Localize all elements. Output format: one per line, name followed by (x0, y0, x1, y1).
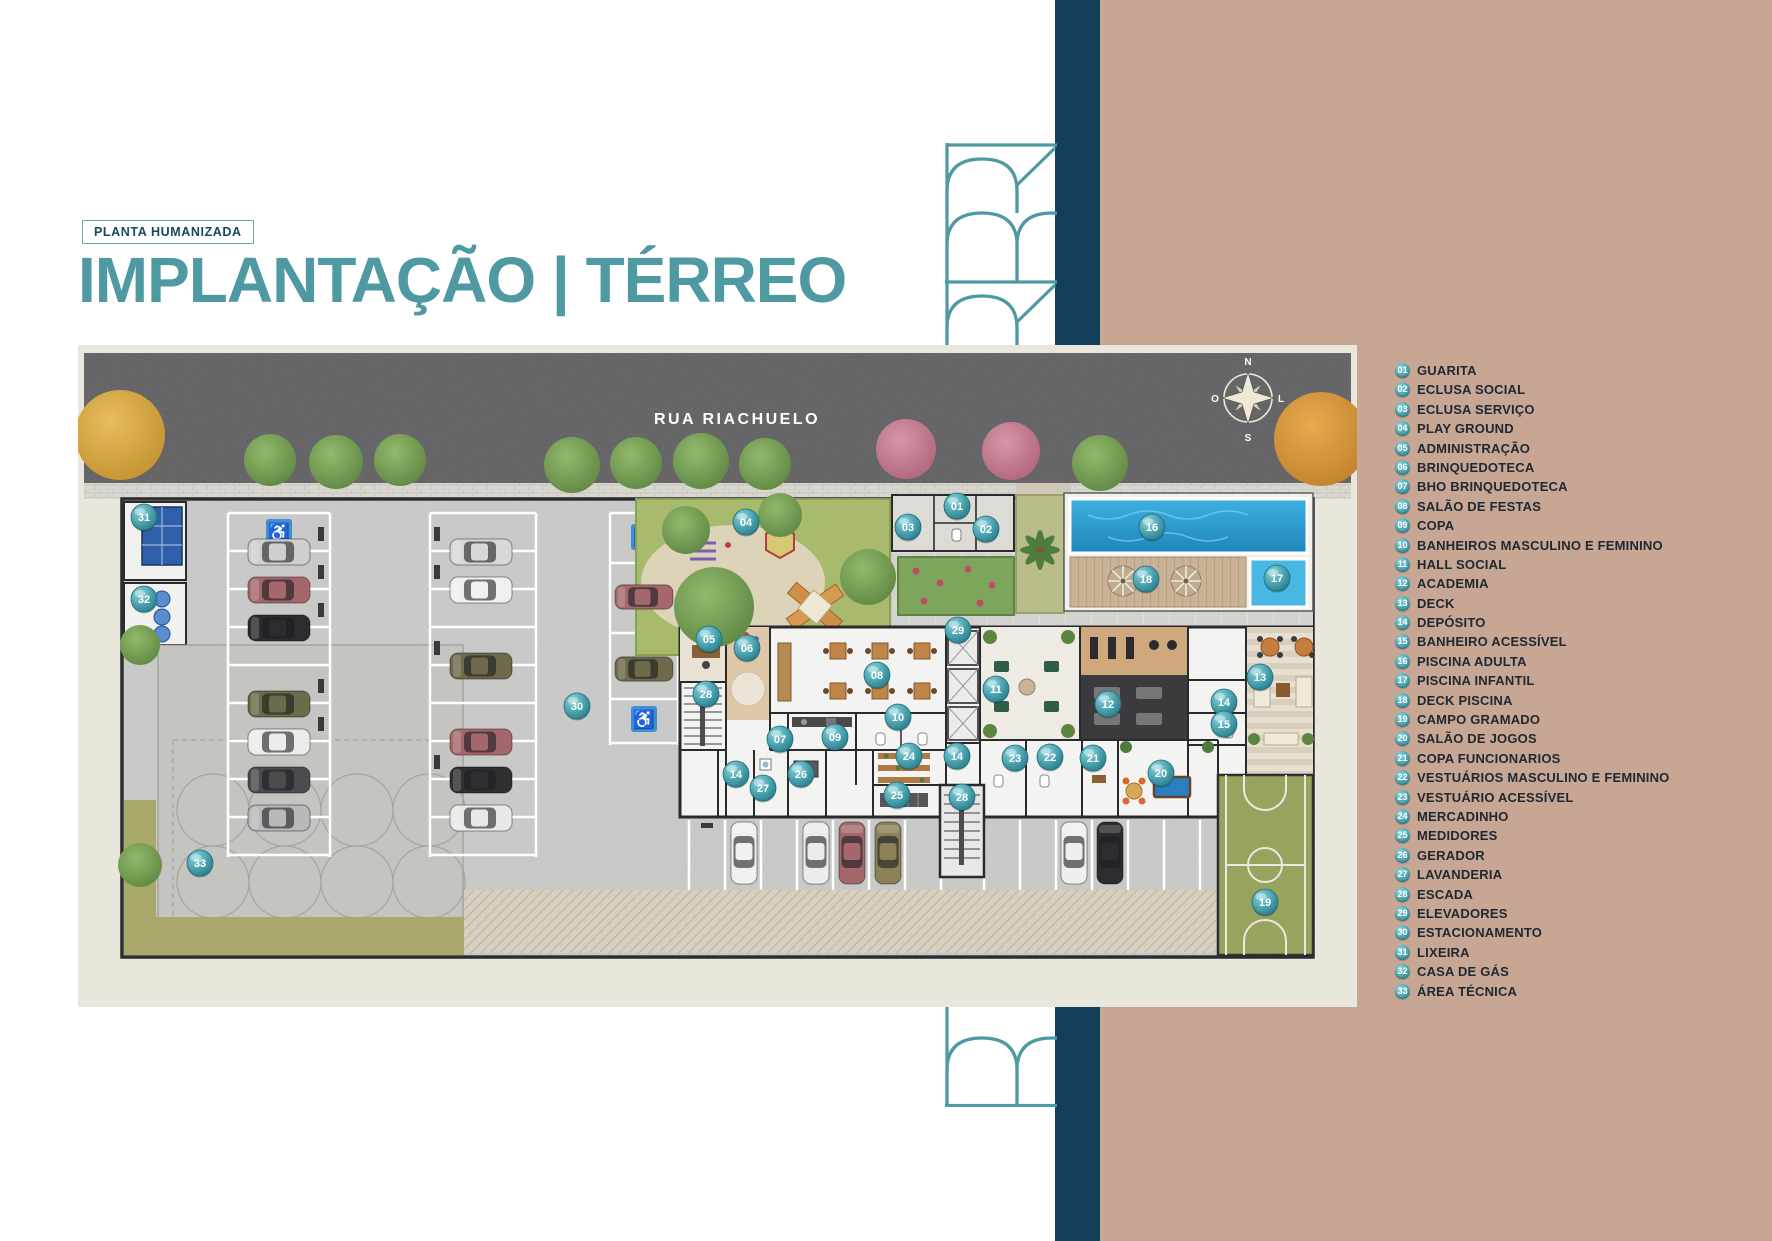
plan-marker: 31 (131, 504, 157, 532)
plan-marker: 14 (723, 761, 749, 789)
legend-item: 24MERCADINHO (1395, 809, 1670, 824)
legend-item-number: 19 (1395, 712, 1410, 727)
plan-marker: 25 (884, 782, 910, 810)
plan-marker: 18 (1133, 566, 1159, 594)
legend-item: 21COPA FUNCIONARIOS (1395, 751, 1670, 766)
legend-item-label: PISCINA ADULTA (1417, 654, 1527, 669)
legend-item-number: 12 (1395, 576, 1410, 591)
svg-text:17: 17 (1271, 573, 1283, 585)
legend-item-label: SALÃO DE FESTAS (1417, 499, 1541, 514)
svg-text:16: 16 (1146, 522, 1158, 534)
legend-item-number: 21 (1395, 751, 1410, 766)
legend-item-label: BANHEIRO ACESSÍVEL (1417, 634, 1567, 649)
plan-marker: 12 (1095, 691, 1121, 719)
svg-text:07: 07 (774, 734, 786, 746)
svg-text:O: O (1211, 394, 1219, 405)
plan-marker: 19 (1252, 889, 1278, 917)
legend-item-label: HALL SOCIAL (1417, 557, 1506, 572)
legend-item: 27LAVANDERIA (1395, 867, 1670, 882)
legend-item-number: 30 (1395, 925, 1410, 940)
svg-text:09: 09 (829, 732, 841, 744)
legend-item: 05ADMINISTRAÇÃO (1395, 441, 1670, 456)
svg-text:28: 28 (956, 792, 968, 804)
legend-item: 13DECK (1395, 596, 1670, 611)
svg-text:30: 30 (571, 701, 583, 713)
svg-text:22: 22 (1044, 752, 1056, 764)
legend-item-number: 31 (1395, 945, 1410, 960)
legend-item-number: 22 (1395, 770, 1410, 785)
legend-item-label: ELEVADORES (1417, 906, 1508, 921)
legend-item-label: PISCINA INFANTIL (1417, 673, 1535, 688)
pool-area (1064, 493, 1313, 611)
plan-marker: 30 (564, 693, 590, 721)
legend-item-number: 03 (1395, 402, 1410, 417)
svg-text:14: 14 (730, 769, 743, 781)
svg-text:31: 31 (138, 512, 150, 524)
legend-item-number: 05 (1395, 441, 1410, 456)
legend-item-label: CAMPO GRAMADO (1417, 712, 1540, 727)
plan-marker: 08 (864, 662, 890, 690)
decorative-arch-pattern-bottom (945, 1006, 1057, 1107)
svg-text:N: N (1244, 357, 1251, 368)
svg-text:02: 02 (980, 524, 992, 536)
svg-text:23: 23 (1009, 753, 1021, 765)
plan-marker: 04 (733, 509, 759, 537)
legend-item-label: ADMINISTRAÇÃO (1417, 441, 1530, 456)
floor-plan: ♿ RUA RIACHUELO N S L O (78, 345, 1357, 1007)
legend-item: 09COPA (1395, 518, 1670, 533)
legend-item-number: 15 (1395, 634, 1410, 649)
svg-text:08: 08 (871, 670, 883, 682)
svg-text:13: 13 (1254, 672, 1266, 684)
legend-item-label: LAVANDERIA (1417, 867, 1502, 882)
plan-marker: 28 (949, 784, 975, 812)
legend-item: 22VESTUÁRIOS MASCULINO E FEMININO (1395, 770, 1670, 785)
legend-item-number: 14 (1395, 615, 1410, 630)
legend-item-label: GUARITA (1417, 363, 1477, 378)
legend-item: 06BRINQUEDOTECA (1395, 460, 1670, 475)
legend-item-label: COPA (1417, 518, 1454, 533)
legend-item-number: 17 (1395, 673, 1410, 688)
legend-item: 28ESCADA (1395, 887, 1670, 902)
plan-marker: 24 (896, 743, 922, 771)
legend-item-label: SALÃO DE JOGOS (1417, 731, 1537, 746)
svg-text:33: 33 (194, 858, 206, 870)
svg-text:21: 21 (1087, 753, 1099, 765)
legend-item: 07BHO BRINQUEDOTECA (1395, 479, 1670, 494)
legend-item: 25MEDIDORES (1395, 828, 1670, 843)
driveway (464, 890, 1218, 953)
legend-item-label: VESTUÁRIOS MASCULINO E FEMININO (1417, 770, 1670, 785)
plan-marker: 14 (944, 743, 970, 771)
svg-text:18: 18 (1140, 574, 1152, 586)
legend-item: 01GUARITA (1395, 363, 1670, 378)
plan-marker: 26 (788, 761, 814, 789)
legend-item: 23VESTUÁRIO ACESSÍVEL (1395, 790, 1670, 805)
legend-item: 18DECK PISCINA (1395, 693, 1670, 708)
legend-item-label: BRINQUEDOTECA (1417, 460, 1534, 475)
page-title: IMPLANTAÇÃO | TÉRREO (78, 243, 846, 317)
svg-text:15: 15 (1218, 719, 1230, 731)
legend-item: 14DEPÓSITO (1395, 615, 1670, 630)
legend-item-label: ESTACIONAMENTO (1417, 925, 1542, 940)
svg-text:27: 27 (757, 783, 769, 795)
svg-text:06: 06 (741, 643, 753, 655)
plan-marker: 28 (693, 681, 719, 709)
legend-item-number: 25 (1395, 828, 1410, 843)
plan-marker: 20 (1148, 760, 1174, 788)
street-name-label: RUA RIACHUELO (654, 411, 820, 428)
legend-item: 33ÁREA TÉCNICA (1395, 984, 1670, 999)
svg-text:01: 01 (951, 501, 963, 513)
legend-item: 12ACADEMIA (1395, 576, 1670, 591)
svg-text:25: 25 (891, 790, 903, 802)
legend-item-number: 02 (1395, 382, 1410, 397)
plan-marker: 15 (1211, 711, 1237, 739)
plan-marker: 22 (1037, 744, 1063, 772)
section-tag: PLANTA HUMANIZADA (82, 220, 254, 244)
legend-item: 17PISCINA INFANTIL (1395, 673, 1670, 688)
legend-item-label: MERCADINHO (1417, 809, 1509, 824)
svg-text:12: 12 (1102, 699, 1114, 711)
legend-item: 11HALL SOCIAL (1395, 557, 1670, 572)
svg-text:14: 14 (951, 751, 964, 763)
legend-item-number: 07 (1395, 479, 1410, 494)
svg-text:10: 10 (892, 712, 904, 724)
svg-text:32: 32 (138, 594, 150, 606)
svg-text:L: L (1278, 394, 1284, 405)
legend-item-label: CASA DE GÁS (1417, 964, 1509, 979)
plan-marker: 03 (895, 514, 921, 542)
plan-marker: 29 (945, 617, 971, 645)
legend-item: 16PISCINA ADULTA (1395, 654, 1670, 669)
legend-item: 26GERADOR (1395, 848, 1670, 863)
plan-marker: 17 (1264, 565, 1290, 593)
legend-item-number: 06 (1395, 460, 1410, 475)
legend-item-number: 04 (1395, 421, 1410, 436)
legend-item-label: ÁREA TÉCNICA (1417, 984, 1517, 999)
plan-marker: 10 (885, 704, 911, 732)
svg-text:11: 11 (990, 684, 1002, 696)
svg-text:05: 05 (703, 634, 715, 646)
svg-text:26: 26 (795, 769, 807, 781)
plan-marker: 16 (1139, 514, 1165, 542)
legend-item-label: ACADEMIA (1417, 576, 1489, 591)
svg-text:03: 03 (902, 522, 914, 534)
legend-item-number: 32 (1395, 964, 1410, 979)
legend-item-number: 23 (1395, 790, 1410, 805)
legend: 01GUARITA02ECLUSA SOCIAL03ECLUSA SERVIÇO… (1395, 363, 1670, 999)
legend-item-label: PLAY GROUND (1417, 421, 1514, 436)
legend-item: 20SALÃO DE JOGOS (1395, 731, 1670, 746)
legend-item: 31LIXEIRA (1395, 945, 1670, 960)
plan-marker: 01 (944, 493, 970, 521)
legend-item-number: 11 (1395, 557, 1410, 572)
legend-item-label: MEDIDORES (1417, 828, 1498, 843)
svg-text:24: 24 (903, 751, 916, 763)
legend-item-label: BANHEIROS MASCULINO E FEMININO (1417, 538, 1663, 553)
svg-text:20: 20 (1155, 768, 1167, 780)
legend-item-label: BHO BRINQUEDOTECA (1417, 479, 1568, 494)
plan-marker: 07 (767, 726, 793, 754)
plan-marker: 11 (983, 676, 1009, 704)
legend-item: 32CASA DE GÁS (1395, 964, 1670, 979)
plan-marker: 02 (973, 516, 999, 544)
plan-marker: 13 (1247, 664, 1273, 692)
legend-item: 10BANHEIROS MASCULINO E FEMININO (1395, 538, 1670, 553)
legend-item-number: 33 (1395, 984, 1410, 999)
plan-marker: 05 (696, 626, 722, 654)
svg-text:28: 28 (700, 689, 712, 701)
svg-text:19: 19 (1259, 897, 1271, 909)
legend-item-label: DEPÓSITO (1417, 615, 1486, 630)
legend-item: 30ESTACIONAMENTO (1395, 925, 1670, 940)
legend-item: 15BANHEIRO ACESSÍVEL (1395, 634, 1670, 649)
plan-marker: 06 (734, 635, 760, 663)
legend-item: 08SALÃO DE FESTAS (1395, 499, 1670, 514)
legend-item: 19CAMPO GRAMADO (1395, 712, 1670, 727)
legend-item-number: 09 (1395, 518, 1410, 533)
decorative-arch-pattern-top (945, 143, 1057, 351)
plan-marker: 09 (822, 724, 848, 752)
legend-item: 04PLAY GROUND (1395, 421, 1670, 436)
legend-item-label: ESCADA (1417, 887, 1473, 902)
legend-item-label: ECLUSA SOCIAL (1417, 382, 1525, 397)
legend-item-label: DECK (1417, 596, 1455, 611)
legend-item-label: DECK PISCINA (1417, 693, 1513, 708)
legend-item-number: 20 (1395, 731, 1410, 746)
legend-item-label: LIXEIRA (1417, 945, 1470, 960)
legend-item-number: 01 (1395, 363, 1410, 378)
plan-marker: 21 (1080, 745, 1106, 773)
svg-text:S: S (1245, 433, 1252, 444)
legend-item-label: COPA FUNCIONARIOS (1417, 751, 1561, 766)
legend-item: 02ECLUSA SOCIAL (1395, 382, 1670, 397)
legend-item-number: 08 (1395, 499, 1410, 514)
legend-item-number: 26 (1395, 848, 1410, 863)
legend-item: 29ELEVADORES (1395, 906, 1670, 921)
legend-item-label: ECLUSA SERVIÇO (1417, 402, 1535, 417)
page: { "page": { "tag": "PLANTA HUMANIZADA", … (0, 0, 1772, 1241)
svg-text:04: 04 (740, 517, 753, 529)
plan-marker: 33 (187, 850, 213, 878)
sports-field (1218, 775, 1313, 955)
plan-marker: 27 (750, 775, 776, 803)
legend-item-number: 13 (1395, 596, 1410, 611)
legend-item-number: 16 (1395, 654, 1410, 669)
legend-item-number: 24 (1395, 809, 1410, 824)
legend-item-label: VESTUÁRIO ACESSÍVEL (1417, 790, 1573, 805)
plan-marker: 23 (1002, 745, 1028, 773)
legend-item-number: 28 (1395, 887, 1410, 902)
svg-text:29: 29 (952, 625, 964, 637)
plan-marker: 32 (131, 586, 157, 614)
legend-item-number: 27 (1395, 867, 1410, 882)
legend-item-label: GERADOR (1417, 848, 1485, 863)
legend-item-number: 18 (1395, 693, 1410, 708)
svg-text:14: 14 (1218, 697, 1231, 709)
legend-item-number: 10 (1395, 538, 1410, 553)
legend-item-number: 29 (1395, 906, 1410, 921)
legend-item: 03ECLUSA SERVIÇO (1395, 402, 1670, 417)
